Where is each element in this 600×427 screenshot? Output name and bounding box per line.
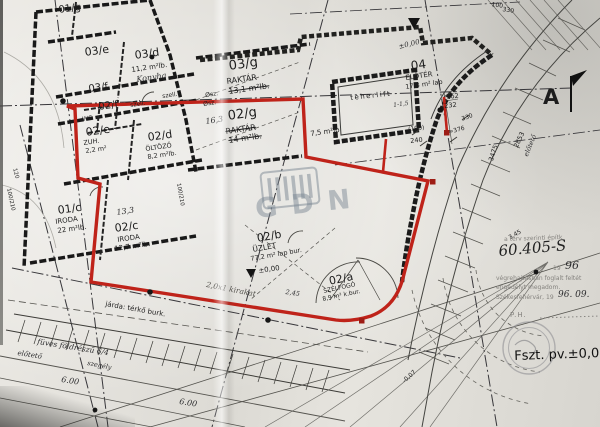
dim-240: 240 [410, 137, 423, 145]
red-spur-1 [383, 139, 386, 172]
room-label-02g: 02/g [227, 106, 258, 123]
dim-232: 232 [444, 102, 457, 110]
red-markers [359, 130, 450, 324]
room-label-02c: 02/c [114, 220, 139, 234]
section-flag [571, 70, 587, 112]
permit-line3: Székesfehérvár, 19 [496, 295, 554, 301]
sidewalk-hatch [6, 314, 350, 393]
floor-level-label: Fszt. pv.±0,00 [514, 347, 600, 363]
permit-line1: végrehajtásban foglalt feltét [496, 276, 581, 282]
room-label-03e: 03/e [84, 44, 110, 58]
room-label-04: 04 [410, 58, 427, 72]
room-label-03g: 03/g [228, 56, 259, 73]
room-label-03d: 03/d [134, 47, 160, 61]
section-marker: A [543, 87, 559, 108]
room-label-01c: 01/c [57, 202, 82, 216]
permit-seal: P.H. [510, 312, 527, 319]
ramp-band [408, 0, 600, 427]
floor-plan-sheet: GDN 01/g 03/e 03/d 11,2 m²lb. Konyha 03/… [0, 0, 600, 427]
room-label-02e: 02/e [85, 124, 111, 138]
permit-year-small: 19 [553, 266, 561, 272]
parapet [200, 27, 492, 60]
dim-162: 162 [446, 93, 459, 101]
permit-date: 96. 09. [558, 291, 590, 300]
permit-line2: engedélyt megadom. [496, 285, 560, 291]
permit-year: 96 [565, 260, 579, 271]
dim-245: 2,45 [285, 289, 300, 297]
